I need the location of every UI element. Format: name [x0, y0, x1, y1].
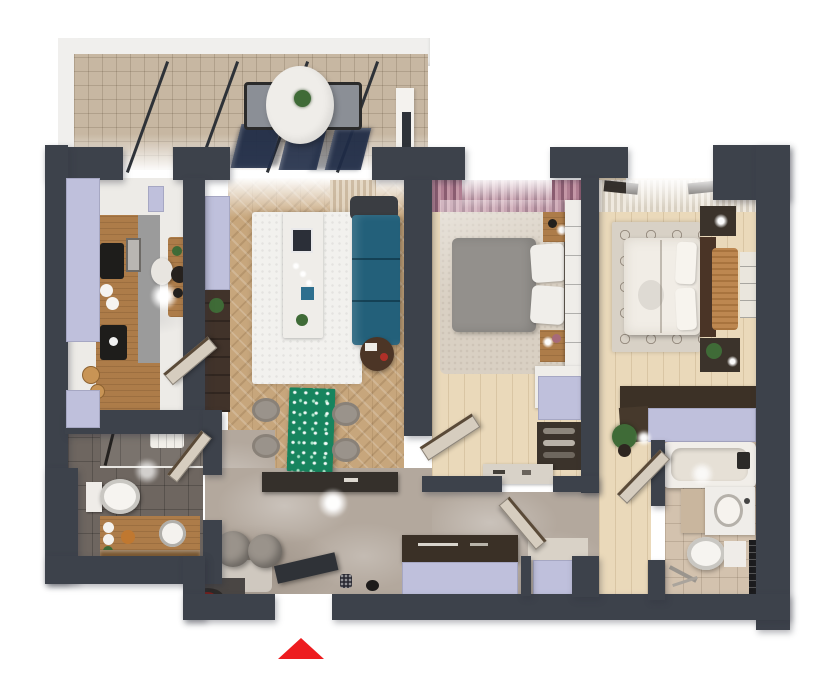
bed2-motif: [638, 280, 664, 310]
wall-divider-living-bed1: [404, 180, 432, 436]
sideboard-item: [493, 470, 505, 474]
shoes: [543, 428, 575, 434]
bath2-light: [690, 462, 714, 486]
shoes: [543, 452, 575, 458]
cooktop-burner: [109, 337, 118, 346]
dining-chair: [332, 438, 360, 462]
orange-throw-bench: [712, 248, 738, 330]
oven: [126, 238, 141, 272]
window-sill-kitchen-upper: [66, 178, 100, 342]
dining-chair: [252, 434, 280, 458]
entry-hat: [366, 580, 379, 591]
floor-plan-render: [0, 0, 836, 699]
shoes: [543, 440, 575, 446]
green-dining-table: [287, 387, 336, 473]
bedroom2-pillow: [675, 288, 697, 331]
wall-bed1-bottom-left: [422, 476, 502, 492]
wall-right: [756, 145, 790, 630]
wall-bath2-stub: [648, 560, 665, 600]
blue-box: [301, 287, 314, 300]
corridor-plant-pot: [618, 444, 631, 457]
candle: [292, 262, 300, 270]
table-plant: [294, 90, 311, 107]
table-decor-plant: [296, 314, 308, 326]
hallway-lamp-glow: [318, 488, 348, 518]
closet2-front: [533, 560, 573, 596]
candle: [305, 279, 313, 287]
closet1-front: [402, 562, 518, 596]
wall-top-d: [372, 147, 465, 180]
cutting-board: [82, 366, 100, 384]
corridor-lamp-glow: [636, 430, 652, 446]
notebook: [365, 343, 377, 351]
bedroom2-lamp-glow: [714, 214, 728, 228]
tv-column-plant: [209, 298, 224, 313]
wall-top-e: [550, 147, 628, 178]
kitchen-chair-white: [151, 258, 173, 285]
towel-roll: [103, 522, 114, 533]
bedroom2-wardrobe-front: [648, 408, 756, 442]
wall-bottom-right: [332, 594, 790, 620]
entrance-arrow: [278, 638, 324, 659]
sofa-seam: [352, 258, 400, 260]
dining-chair: [332, 402, 360, 426]
red-cup: [380, 353, 388, 361]
entry-bag: [340, 574, 352, 588]
bath2-sink: [714, 494, 743, 527]
window-sill-stub: [148, 186, 164, 212]
bedroom1-bed: [452, 238, 536, 332]
plate: [100, 284, 113, 297]
amber-jar: [121, 530, 135, 544]
flower-vase: [552, 334, 561, 343]
wall-closet-stub: [521, 556, 531, 596]
plate: [106, 297, 119, 310]
pouf: [248, 534, 282, 568]
teal-sofa: [352, 215, 400, 345]
wall-bottom-left: [183, 594, 275, 620]
dining-chair: [252, 398, 280, 422]
toilet2-bowl: [687, 537, 725, 570]
closet1-items: [418, 543, 458, 546]
coffee-machine: [100, 243, 124, 279]
coffee-table-art: [291, 228, 313, 253]
bedroom1-pillow: [530, 243, 567, 283]
console-item: [344, 478, 358, 482]
table-plant-small: [172, 246, 182, 256]
bedroom2-pillow: [675, 242, 697, 285]
closet1-top: [402, 535, 518, 562]
wall-bath1-bottom: [45, 556, 205, 584]
window-sill-kitchen-lower: [66, 390, 100, 428]
bedroom2-plant: [706, 343, 722, 359]
towel-roll: [103, 534, 114, 545]
candle: [299, 270, 307, 278]
wall-divider-bed1-bed2: [581, 178, 599, 493]
bedroom1-wardrobe-front: [538, 376, 581, 420]
bedroom2-shelf: [740, 252, 756, 318]
bath2-faucet: [737, 452, 750, 469]
bedroom1-pillow: [530, 285, 567, 325]
bath1-light: [134, 458, 160, 484]
wall-kitchen-living: [183, 178, 205, 432]
bedroom1-dresser: [565, 200, 581, 372]
toilet2-tank: [724, 541, 746, 567]
sofa-seam: [352, 300, 400, 302]
wall-top-b: [173, 147, 230, 180]
living-cabinet-lavender: [205, 196, 230, 290]
bedroom2-window-light: [626, 178, 716, 208]
bath1-sink: [159, 520, 186, 547]
bath2-cabinet: [681, 489, 705, 533]
wall-bath1-right-lower: [203, 520, 222, 584]
kitchen-pendant-lamp: [173, 288, 183, 298]
wall-bed1-bottom-right: [553, 476, 599, 492]
bedroom2-lamp-glow2: [727, 356, 738, 367]
wall-closet2-right: [572, 556, 599, 597]
bath2-sink-faucet: [744, 498, 750, 504]
sideboard-item: [522, 470, 531, 475]
toilet-bowl: [100, 479, 140, 514]
closet1-items: [470, 543, 488, 546]
